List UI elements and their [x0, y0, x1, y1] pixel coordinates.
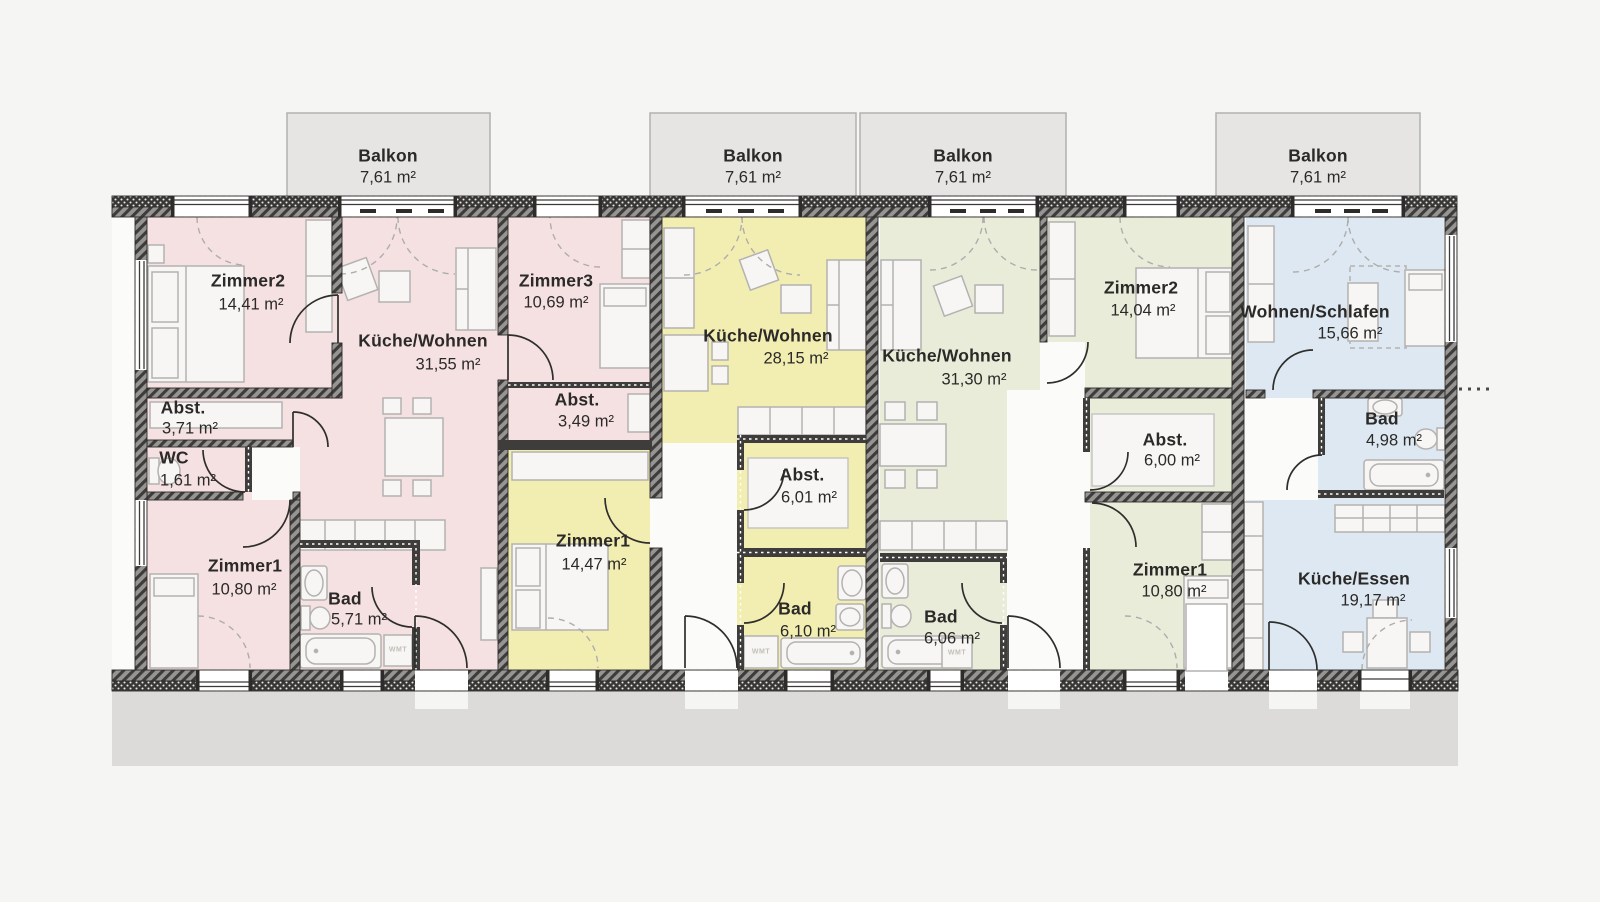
washbasin	[838, 566, 866, 600]
cupboard	[481, 568, 497, 640]
wardrobe	[1202, 504, 1232, 560]
balcony-3	[860, 113, 1066, 198]
floor-plan: Balkon 7,61 m² Balkon 7,61 m² Balkon 7,6…	[0, 0, 1600, 902]
sideboard	[512, 452, 648, 480]
toilet	[882, 604, 911, 628]
side-table	[781, 285, 811, 313]
bathtub	[781, 638, 866, 668]
washer	[384, 635, 412, 666]
table	[1348, 283, 1378, 341]
sofa	[827, 260, 866, 350]
sofa	[881, 260, 921, 350]
balcony-4	[1216, 113, 1420, 198]
toilet	[1415, 428, 1445, 450]
washer	[744, 636, 778, 668]
wardrobe	[1049, 222, 1075, 336]
bed-single	[1405, 270, 1446, 346]
wardrobe	[622, 220, 650, 278]
washbasin	[882, 564, 908, 598]
balconies	[287, 113, 1420, 198]
washbasin	[1368, 398, 1402, 416]
bed-double	[512, 544, 608, 630]
shelf	[1092, 414, 1214, 486]
washbasin	[836, 604, 864, 630]
bed-single	[150, 574, 198, 668]
ground-strip	[112, 691, 1458, 766]
bathtub	[300, 634, 381, 668]
bed-double	[148, 266, 244, 382]
sofa	[456, 248, 496, 330]
floor-plan-drawing	[0, 0, 1600, 902]
bed-single	[600, 284, 650, 368]
washbasin	[301, 566, 327, 600]
toilet	[149, 458, 180, 484]
nightstand	[148, 245, 164, 263]
kitchen-counter	[738, 407, 866, 435]
bathtub	[1364, 460, 1444, 490]
wardrobe	[306, 220, 332, 332]
shelf	[748, 458, 848, 528]
terrace-door-leaf	[1186, 604, 1227, 671]
shelf	[150, 402, 282, 428]
side-table	[379, 271, 410, 302]
cupboard	[664, 228, 694, 328]
side-table	[975, 285, 1003, 313]
shelf	[628, 394, 650, 432]
balcony-2	[650, 113, 856, 198]
washer	[942, 638, 972, 668]
wardrobe	[1248, 226, 1274, 342]
kitchen-counter	[1335, 505, 1445, 532]
toilet	[301, 606, 330, 630]
tall-cabinet	[1244, 502, 1263, 670]
kitchen-counter	[880, 521, 1007, 550]
bed-double	[1136, 268, 1232, 358]
balcony-1	[287, 113, 490, 198]
